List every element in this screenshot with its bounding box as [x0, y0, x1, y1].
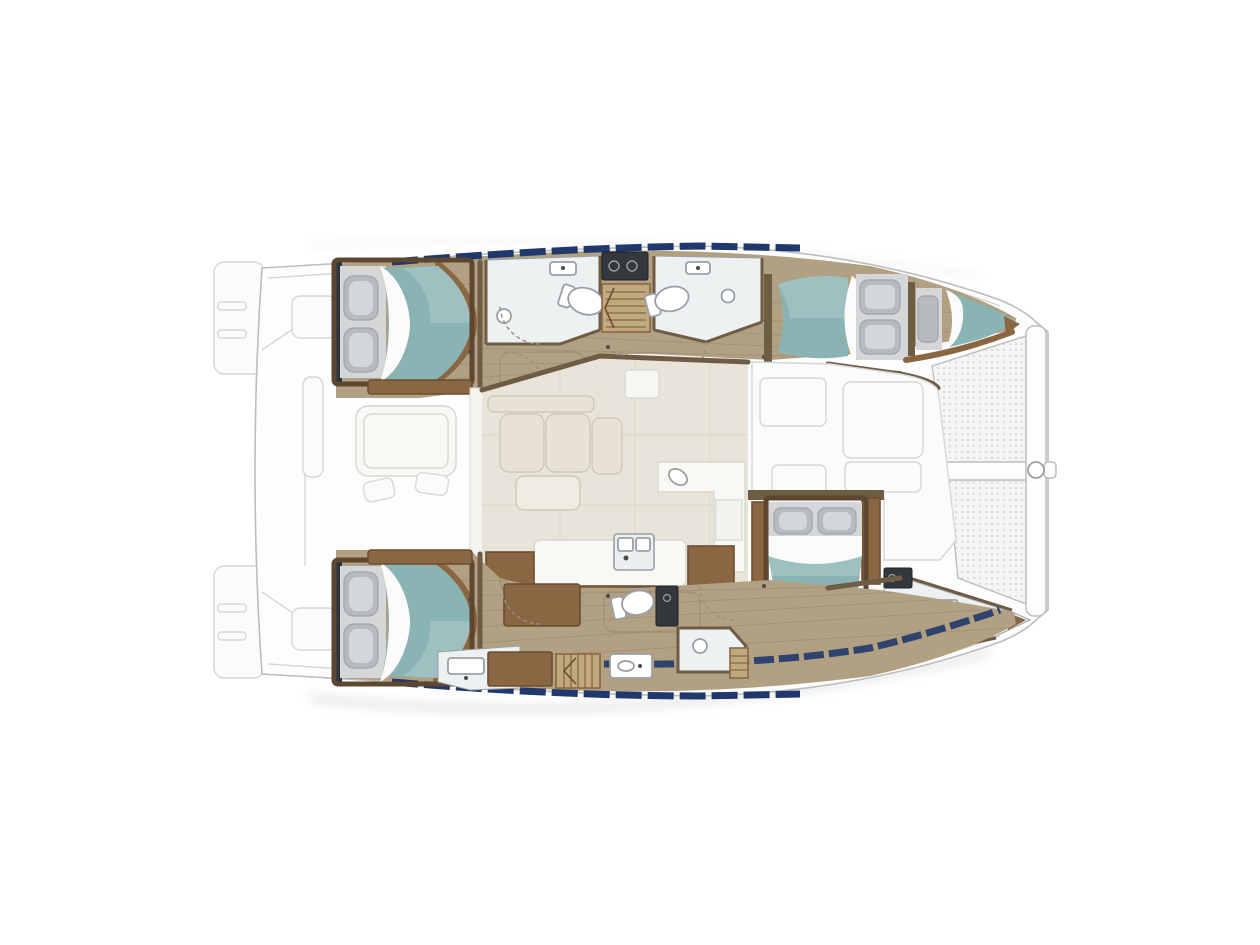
transom-ladder-bar: [218, 632, 246, 640]
faucet-dot: [561, 266, 565, 270]
faucet-dot: [638, 664, 642, 668]
floorplan-page: [0, 0, 1260, 945]
aft-seat-ghost: [292, 608, 336, 650]
sofa-backrest: [488, 396, 594, 412]
door-stop-dot: [468, 598, 472, 602]
island-sink-unit: [614, 534, 654, 570]
faucet-dot: [624, 556, 629, 561]
appliance: [716, 500, 742, 540]
helm-seat-ghost: [292, 296, 336, 338]
side-cabinet: [625, 370, 659, 398]
door-stop-dot: [606, 345, 610, 349]
cabinet-dark: [656, 586, 678, 626]
transom-ladder-bar: [218, 302, 246, 310]
sofa-cushion: [592, 418, 622, 474]
door-stop-dot: [606, 594, 610, 598]
door-stop-dot: [468, 350, 472, 354]
lounge-seat-ghost: [760, 378, 826, 426]
sofa-cushion: [500, 414, 544, 472]
faucet-dot: [464, 676, 468, 680]
sink-icon: [448, 658, 484, 674]
berth-pillow: [918, 296, 938, 342]
bed-foot-bench: [368, 550, 472, 564]
sink-basin: [618, 661, 634, 671]
transom-ladder-bar: [218, 604, 246, 612]
starboard-vanity: [610, 654, 652, 678]
faucet-dot: [696, 266, 700, 270]
cabin-wall: [764, 274, 772, 364]
transom-ladder-bar: [218, 330, 246, 338]
bowsprit-tab: [1044, 462, 1056, 478]
salon: [470, 356, 748, 602]
coffee-table: [516, 476, 580, 510]
port-companionway: [602, 252, 650, 332]
cockpit-table: [356, 406, 456, 476]
lounge-step-ghost: [845, 462, 921, 492]
anchor-fitting: [1028, 462, 1044, 478]
berth-wall: [908, 282, 915, 356]
catamaran-floorplan: [0, 0, 1260, 945]
lounge-pad-ghost: [843, 382, 923, 458]
bed-foot-bench: [368, 380, 472, 394]
shower-head-icon: [722, 290, 735, 303]
sofa-cushion: [546, 414, 590, 472]
cabinet: [488, 652, 552, 686]
cockpit-bench-ghost: [303, 377, 323, 477]
door-stop-dot: [762, 584, 766, 588]
cockpit-stool: [415, 472, 449, 496]
galley-island: [534, 540, 686, 586]
staircase-icon: [602, 284, 650, 332]
port-aft-bathroom: [486, 256, 607, 344]
shower-head-icon: [693, 639, 707, 653]
